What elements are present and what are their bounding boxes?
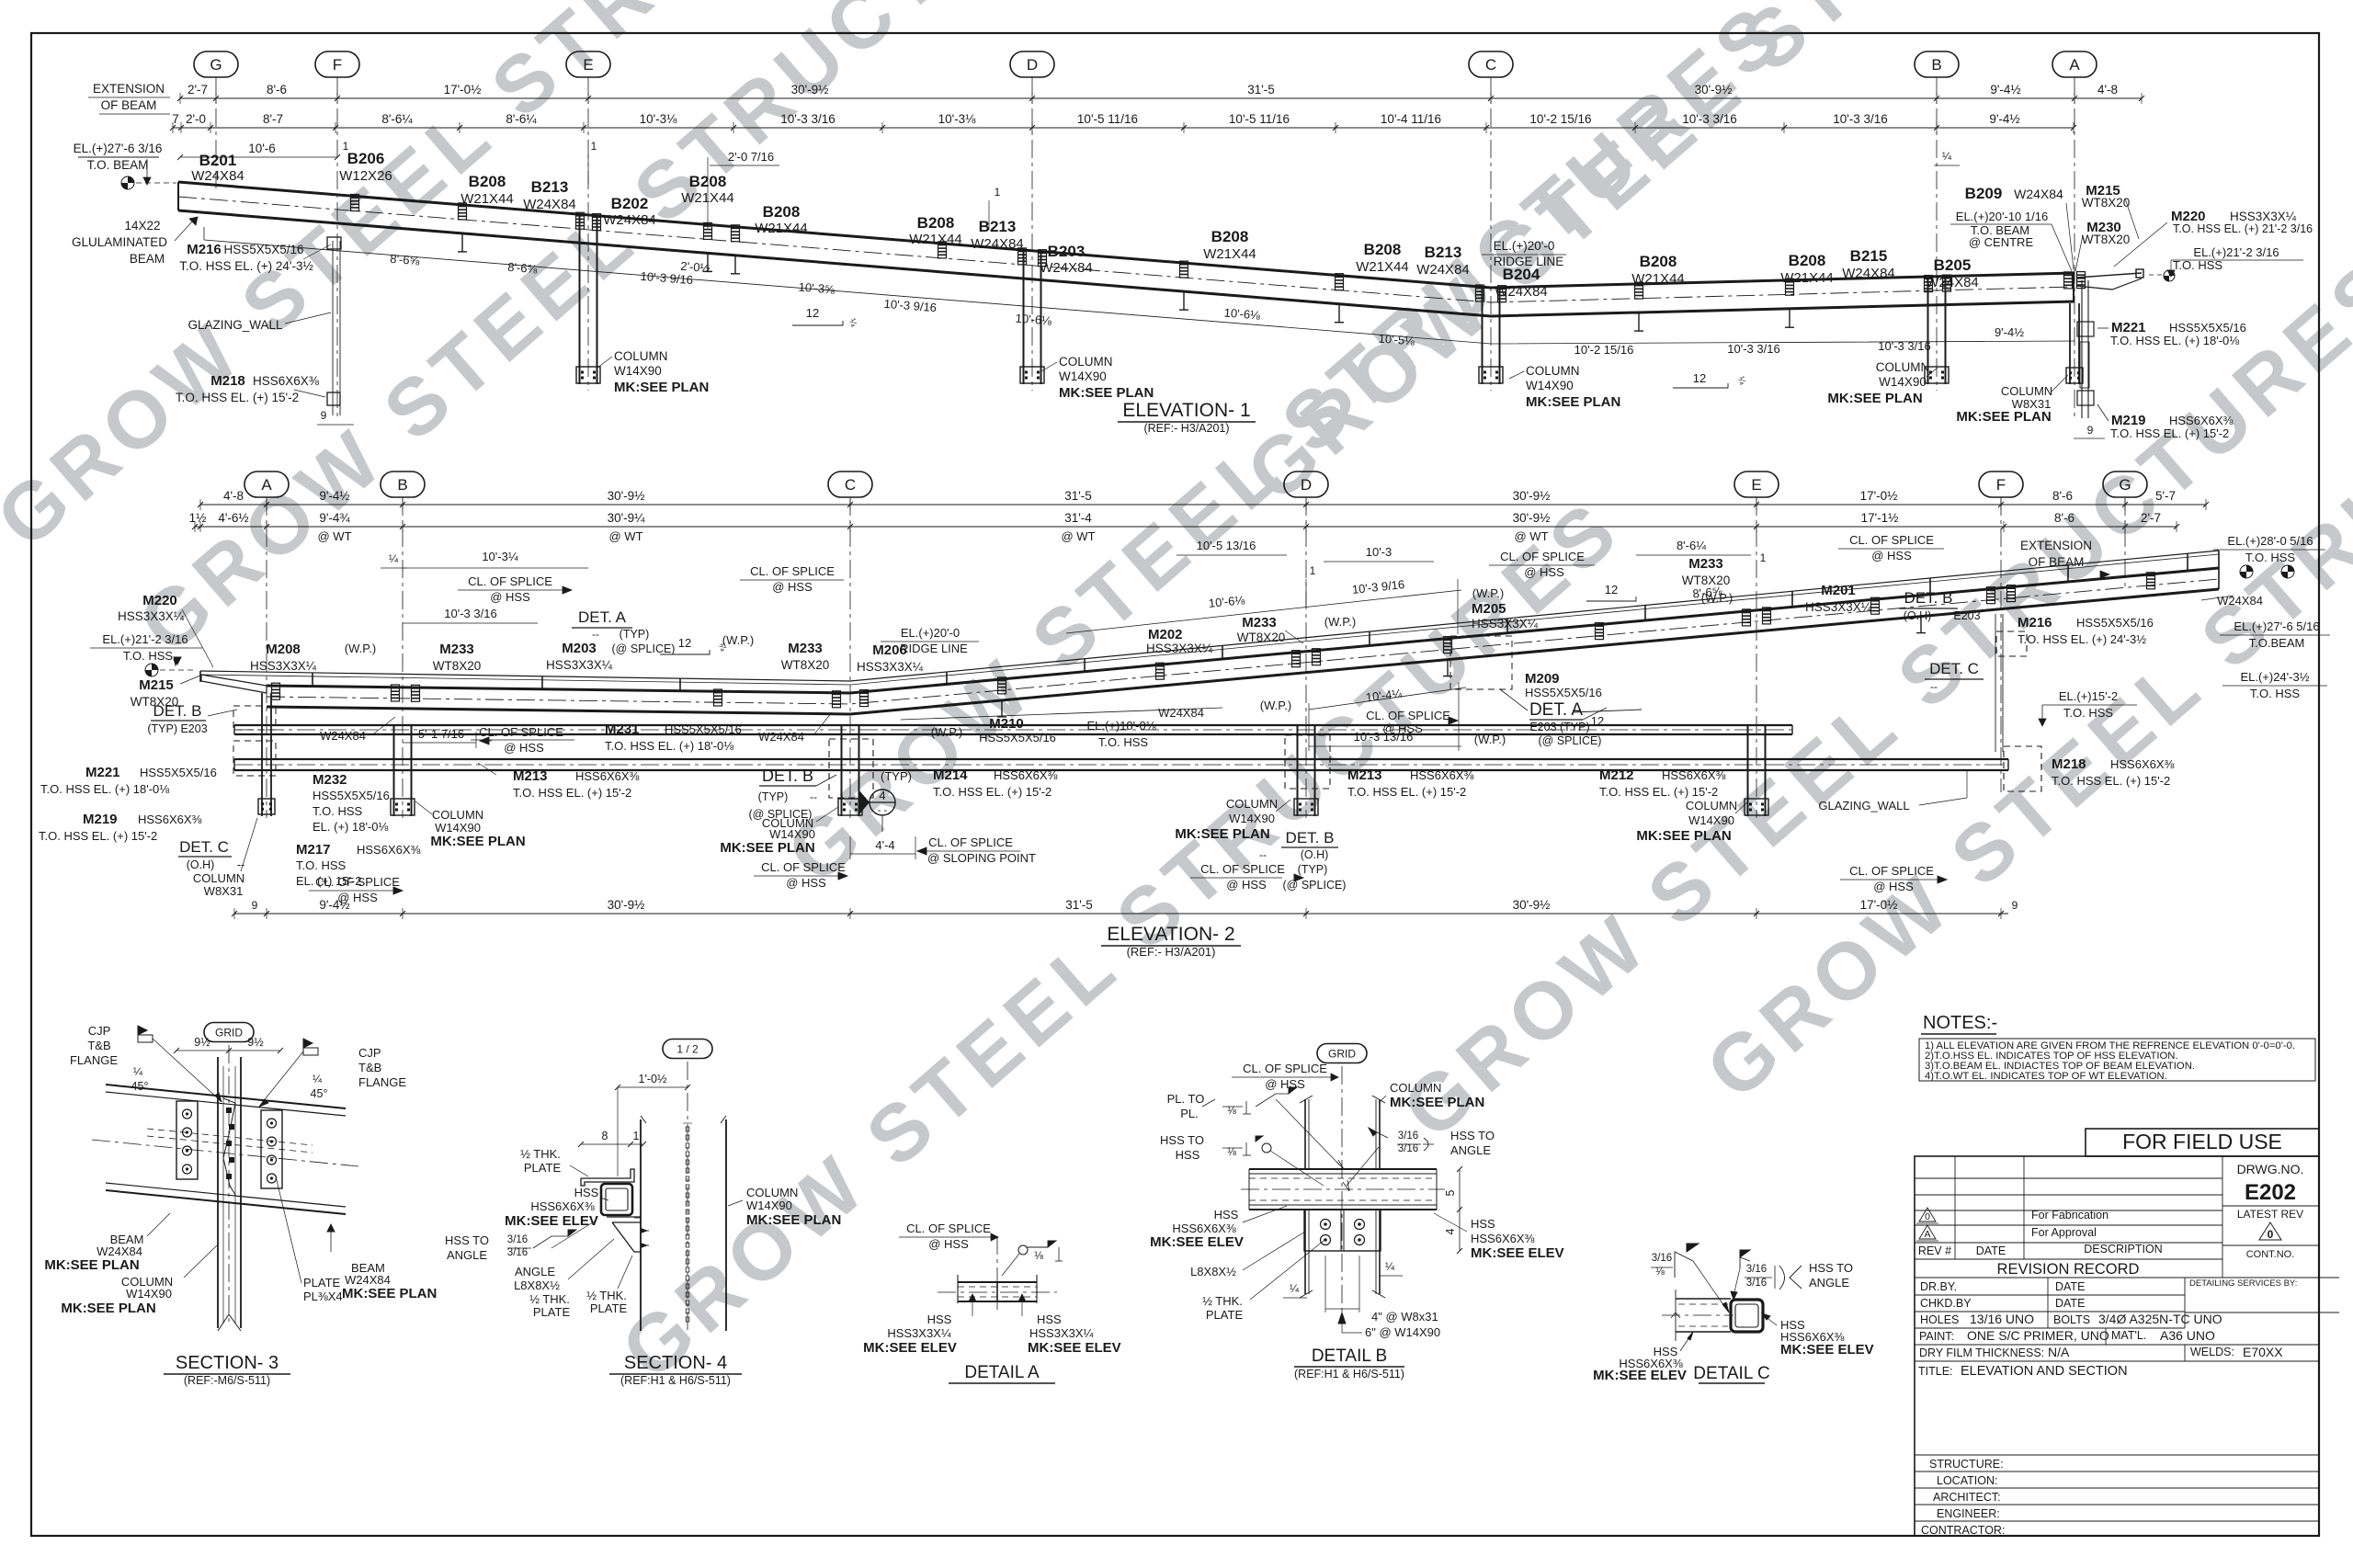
svg-text:CL. OF SPLICE: CL. OF SPLICE	[468, 574, 552, 588]
svg-text:5'-7: 5'-7	[2155, 489, 2176, 503]
svg-text:@ HSS: @ HSS	[1873, 880, 1914, 893]
svg-text:HSS: HSS	[574, 1186, 599, 1199]
svg-text:W24X84: W24X84	[603, 212, 656, 228]
svg-text:31'-5: 31'-5	[1247, 83, 1275, 97]
svg-text:30'-9½: 30'-9½	[608, 898, 645, 912]
svg-text:10'-5 11/16: 10'-5 11/16	[1077, 112, 1138, 126]
svg-text:4)T.O.WT EL. INDICATES TOP OF: 4)T.O.WT EL. INDICATES TOP OF WT ELEVATI…	[1925, 1071, 2167, 1082]
svg-text:T.O. HSS: T.O. HSS	[2245, 551, 2296, 564]
svg-text:M213: M213	[513, 768, 548, 784]
svg-text:HSS TO: HSS TO	[1809, 1261, 1853, 1275]
svg-text:30'-9½: 30'-9½	[608, 489, 645, 503]
svg-text:W24X84: W24X84	[1495, 284, 1548, 300]
svg-text:C: C	[845, 476, 856, 494]
svg-text:M231: M231	[605, 722, 640, 737]
svg-text:(@ SPLICE): (@ SPLICE)	[1539, 734, 1602, 747]
svg-text:DATE: DATE	[1976, 1244, 2006, 1257]
svg-text:T.O. HSS EL. (+) 15'-2: T.O. HSS EL. (+) 15'-2	[39, 829, 157, 843]
svg-text:W14X90: W14X90	[746, 1199, 792, 1212]
svg-text:PLATE: PLATE	[533, 1305, 571, 1319]
svg-text:10'-3 3/16: 10'-3 3/16	[444, 607, 496, 620]
svg-text:8'-6⅝: 8'-6⅝	[507, 260, 538, 276]
svg-text:B208: B208	[917, 214, 955, 232]
svg-text:@ HSS: @ HSS	[1871, 549, 1912, 562]
svg-text:4'-8: 4'-8	[2097, 83, 2118, 97]
svg-text:PAINT:: PAINT:	[1919, 1330, 1954, 1343]
svg-text:DETAIL A: DETAIL A	[964, 1363, 1040, 1382]
svg-text:M218: M218	[210, 373, 245, 389]
svg-text:ELEVATION- 1: ELEVATION- 1	[1122, 400, 1250, 421]
svg-text:4" @ W8x31: 4" @ W8x31	[1371, 1310, 1438, 1324]
svg-text:@ HSS: @ HSS	[928, 1237, 969, 1251]
svg-text:10'-3 3/16: 10'-3 3/16	[1878, 339, 1930, 353]
svg-text:@ HSS: @ HSS	[1382, 722, 1423, 735]
svg-text:COLUMN: COLUMN	[1876, 360, 1930, 374]
svg-text:G: G	[2119, 476, 2131, 494]
svg-text:10'-5 13/16: 10'-5 13/16	[1197, 539, 1256, 552]
svg-text:10'-3 3/16: 10'-3 3/16	[780, 112, 835, 126]
svg-text:½ THK.: ½ THK.	[586, 1289, 627, 1302]
svg-text:⅛: ⅛	[1655, 1267, 1665, 1278]
svg-text:½ THK.: ½ THK.	[520, 1147, 561, 1161]
svg-text:12: 12	[1591, 714, 1604, 728]
svg-text:HSS6X6X⅜: HSS6X6X⅜	[138, 812, 202, 826]
svg-text:HSS6X6X⅜: HSS6X6X⅜	[575, 769, 640, 783]
svg-text:4'-8: 4'-8	[223, 489, 244, 503]
svg-text:17'-0½: 17'-0½	[1860, 898, 1898, 912]
svg-text:B: B	[1931, 56, 1941, 74]
svg-text:(W.P.): (W.P.)	[722, 633, 754, 647]
svg-text:¼: ¼	[389, 552, 399, 565]
svg-text:13/16 UNO: 13/16 UNO	[1970, 1312, 2034, 1326]
svg-text:17'-1½: 17'-1½	[1861, 511, 1899, 525]
svg-text:T.O. HSS EL. (+) 24'-3½: T.O. HSS EL. (+) 24'-3½	[2018, 632, 2146, 646]
svg-text:MAT'L.: MAT'L.	[2111, 1329, 2146, 1342]
svg-text:9: 9	[2087, 424, 2094, 437]
svg-text:M213: M213	[1347, 767, 1382, 783]
svg-text:DR.BY.: DR.BY.	[1920, 1280, 1957, 1293]
svg-text:HSS TO: HSS TO	[445, 1233, 489, 1247]
svg-text:HSS6X6X⅜: HSS6X6X⅜	[1172, 1221, 1236, 1235]
svg-text:CL. OF SPLICE: CL. OF SPLICE	[315, 875, 400, 889]
svg-text:(W.P.): (W.P.)	[1472, 586, 1504, 600]
svg-text:MK:SEE ELEV: MK:SEE ELEV	[505, 1213, 598, 1229]
svg-text:2'-0: 2'-0	[186, 112, 206, 126]
svg-text:W24X84: W24X84	[2217, 594, 2263, 608]
svg-text:DET. B: DET. B	[153, 702, 202, 720]
svg-text:E203: E203	[1953, 609, 1980, 622]
svg-text:9'-4¾: 9'-4¾	[319, 511, 350, 525]
svg-text:REVISION RECORD: REVISION RECORD	[1997, 1261, 2140, 1278]
svg-text:MK:SEE PLAN: MK:SEE PLAN	[1175, 826, 1269, 842]
svg-text:HSS: HSS	[1214, 1208, 1239, 1221]
svg-text:(O.H): (O.H)	[187, 858, 215, 871]
svg-text:M214: M214	[933, 767, 968, 783]
svg-text:ONE S/C PRIMER, UNO: ONE S/C PRIMER, UNO	[1967, 1328, 2109, 1343]
svg-text:30'-9½: 30'-9½	[1513, 898, 1551, 912]
svg-text:W21X44: W21X44	[460, 191, 514, 207]
svg-text:4: 4	[879, 789, 885, 802]
svg-text:OF BEAM: OF BEAM	[101, 98, 157, 112]
svg-text:B208: B208	[1640, 253, 1677, 270]
svg-text:T&B: T&B	[87, 1039, 110, 1052]
svg-text:ELEVATION AND SECTION: ELEVATION AND SECTION	[1961, 1364, 2128, 1379]
svg-text:CL. OF SPLICE: CL. OF SPLICE	[1243, 1062, 1327, 1075]
svg-text:BOLTS: BOLTS	[2053, 1313, 2090, 1326]
svg-text:0: 0	[1925, 1211, 1930, 1222]
svg-text:DET. A: DET. A	[1529, 700, 1583, 720]
svg-text:31'-5: 31'-5	[1065, 898, 1093, 912]
svg-text:12: 12	[1605, 583, 1618, 597]
svg-text:--: --	[1930, 680, 1938, 693]
svg-text:⅛: ⅛	[1034, 1251, 1043, 1262]
svg-text:30'-9½: 30'-9½	[791, 83, 829, 97]
svg-text:HSS: HSS	[927, 1312, 952, 1326]
svg-text:HSS3X3X¼: HSS3X3X¼	[887, 1326, 951, 1340]
svg-text:B208: B208	[1789, 252, 1826, 269]
svg-text:ENGINEER:: ENGINEER:	[1937, 1507, 2000, 1520]
svg-text:(@ SPLICE): (@ SPLICE)	[1283, 879, 1347, 892]
svg-text:OF BEAM: OF BEAM	[2029, 555, 2085, 569]
svg-text:ANGLE: ANGLE	[1450, 1143, 1491, 1157]
svg-text:(O.H): (O.H)	[1904, 609, 1932, 622]
svg-text:@ HSS: @ HSS	[1524, 565, 1564, 579]
svg-text:(W.P.): (W.P.)	[1474, 733, 1506, 746]
svg-text:9: 9	[252, 899, 258, 912]
svg-text:MK:SEE PLAN: MK:SEE PLAN	[614, 380, 709, 395]
svg-text:2'-7: 2'-7	[2141, 511, 2161, 525]
svg-text:DESCRIPTION: DESCRIPTION	[2084, 1243, 2162, 1256]
svg-text:COLUMN: COLUMN	[193, 871, 244, 885]
svg-text:6" @ W14X90: 6" @ W14X90	[1365, 1325, 1440, 1339]
svg-text:HSS6X6X⅜: HSS6X6X⅜	[2169, 414, 2234, 427]
svg-text:10'-3⅛: 10'-3⅛	[938, 112, 977, 126]
svg-text:HSS3X3X¼: HSS3X3X¼	[118, 609, 185, 623]
svg-text:4'-4: 4'-4	[875, 838, 894, 852]
svg-text:SECTION- 3: SECTION- 3	[176, 1353, 278, 1373]
svg-text:9½: 9½	[247, 1036, 264, 1049]
svg-text:B203: B203	[1048, 243, 1086, 260]
svg-text:MK:SEE PLAN: MK:SEE PLAN	[1956, 409, 2051, 425]
svg-text:EL.(+)27'-6 3/16: EL.(+)27'-6 3/16	[74, 142, 163, 155]
svg-text:HSS5X5X5/16: HSS5X5X5/16	[2169, 321, 2246, 335]
svg-text:DET. B: DET. B	[1904, 589, 1953, 607]
svg-text:WT8X20: WT8X20	[781, 658, 830, 672]
svg-text:DATE: DATE	[2055, 1280, 2085, 1293]
svg-text:10'-3 3/16: 10'-3 3/16	[1727, 342, 1779, 356]
svg-text:W14X90: W14X90	[1688, 813, 1734, 827]
svg-text:HSS5X5X5/16: HSS5X5X5/16	[1525, 686, 1602, 699]
svg-text:W14X90: W14X90	[435, 821, 481, 835]
svg-text:T.O. HSS EL. (+) 15'-2: T.O. HSS EL. (+) 15'-2	[1347, 785, 1466, 799]
svg-text:T.O. HSS EL. (+) 18'-0⅛: T.O. HSS EL. (+) 18'-0⅛	[40, 782, 169, 796]
svg-text:M215: M215	[139, 677, 174, 693]
svg-text:30'-9½: 30'-9½	[1513, 511, 1551, 525]
svg-text:M216: M216	[2018, 615, 2052, 631]
svg-text:B213: B213	[531, 178, 569, 196]
svg-text:(TYP): (TYP)	[881, 769, 912, 783]
svg-text:12: 12	[806, 306, 819, 320]
svg-text:EL.(+)21'-2 3/16: EL.(+)21'-2 3/16	[2193, 245, 2279, 259]
svg-text:10'-3: 10'-3	[1366, 545, 1392, 559]
svg-text:30'-9½: 30'-9½	[1695, 83, 1733, 97]
svg-text:COLUMN: COLUMN	[614, 349, 668, 363]
svg-text:L8X8X½: L8X8X½	[1190, 1265, 1236, 1278]
svg-text:¼: ¼	[1385, 1260, 1395, 1273]
svg-text:CL. OF SPLICE: CL. OF SPLICE	[906, 1221, 991, 1235]
svg-text:ANGLE: ANGLE	[515, 1265, 555, 1278]
svg-text:CHKD.BY: CHKD.BY	[1920, 1297, 1972, 1310]
svg-text:--: --	[810, 790, 817, 803]
svg-text:WT8X20: WT8X20	[2082, 196, 2131, 210]
svg-text:F: F	[333, 56, 342, 74]
svg-text:B208: B208	[689, 173, 727, 190]
svg-text:D: D	[1301, 476, 1312, 494]
svg-text:T.O. HSS EL. (+) 15'-2: T.O. HSS EL. (+) 15'-2	[513, 786, 631, 800]
svg-text:@ WT: @ WT	[608, 529, 642, 543]
svg-text:B205: B205	[1934, 256, 1972, 274]
svg-text:DRY FILM THICKNESS:: DRY FILM THICKNESS:	[1919, 1346, 2044, 1359]
svg-text:EXTENSION: EXTENSION	[2020, 539, 2092, 552]
svg-text:@ WT: @ WT	[1061, 529, 1095, 543]
svg-text:MK:SEE ELEV: MK:SEE ELEV	[1028, 1340, 1121, 1356]
svg-text:(REF:H1 & H6/S-511): (REF:H1 & H6/S-511)	[1294, 1368, 1404, 1381]
svg-text:@ SLOPING POINT: @ SLOPING POINT	[927, 851, 1036, 865]
svg-text:CL. OF SPLICE: CL. OF SPLICE	[761, 860, 846, 874]
svg-text:WT8X20: WT8X20	[1237, 631, 1286, 644]
svg-text:W14X90: W14X90	[769, 827, 815, 841]
svg-text:(O.H): (O.H)	[1301, 848, 1329, 861]
svg-text:HSS5X5X5/16: HSS5X5X5/16	[2076, 616, 2154, 630]
svg-text:E: E	[583, 56, 593, 74]
svg-text:MK:SEE PLAN: MK:SEE PLAN	[342, 1286, 437, 1301]
svg-text:(W.P.): (W.P.)	[931, 725, 962, 739]
svg-text:1: 1	[591, 140, 597, 153]
svg-text:HSS3X3X¼: HSS3X3X¼	[250, 659, 317, 673]
svg-text:4'-6½: 4'-6½	[218, 511, 248, 525]
svg-text:M216: M216	[187, 242, 222, 257]
svg-text:M202: M202	[1148, 627, 1183, 642]
svg-text:COLUMN: COLUMN	[1390, 1081, 1441, 1095]
svg-text:EL.(+)20'-0: EL.(+)20'-0	[1494, 239, 1555, 253]
svg-text:MK:SEE ELEV: MK:SEE ELEV	[863, 1340, 957, 1356]
svg-text:FLANGE: FLANGE	[358, 1075, 406, 1089]
svg-text:W24X84: W24X84	[97, 1244, 142, 1258]
svg-text:½ THK.: ½ THK.	[1202, 1294, 1243, 1308]
svg-text:G: G	[210, 56, 222, 74]
svg-text:ARCHITECT:: ARCHITECT:	[1933, 1491, 2001, 1504]
svg-text:B213: B213	[979, 218, 1017, 235]
svg-text:WELDS:: WELDS:	[2190, 1346, 2234, 1358]
svg-text:31'-5: 31'-5	[1064, 489, 1092, 503]
svg-text:M221: M221	[85, 765, 120, 780]
svg-text:W24X84: W24X84	[1158, 706, 1204, 720]
svg-text:ELEVATION- 2: ELEVATION- 2	[1107, 924, 1234, 945]
svg-text:W14X90: W14X90	[614, 364, 662, 378]
svg-text:@ HSS: @ HSS	[1226, 878, 1267, 892]
svg-text:E203 (TYP): E203 (TYP)	[1529, 721, 1589, 733]
svg-text:W14X90: W14X90	[1879, 375, 1927, 389]
svg-text:1'-0½: 1'-0½	[639, 1073, 667, 1085]
svg-text:¼: ¼	[313, 1073, 323, 1085]
svg-text:DET. A: DET. A	[578, 608, 627, 626]
svg-text:W21X44: W21X44	[1203, 246, 1256, 262]
svg-text:L8X8X½: L8X8X½	[514, 1278, 560, 1292]
svg-text:MK:SEE ELEV: MK:SEE ELEV	[1780, 1342, 1874, 1358]
svg-text:(TYP): (TYP)	[1298, 863, 1328, 876]
svg-text:W24X84: W24X84	[1416, 262, 1470, 278]
svg-text:HSS6X6X⅜: HSS6X6X⅜	[2110, 757, 2175, 771]
svg-text:W24X84: W24X84	[345, 1273, 391, 1287]
svg-text:DET. C: DET. C	[1929, 660, 1979, 677]
svg-text:T.O. HSS: T.O. HSS	[2173, 258, 2223, 272]
svg-text:EL.(+)20'-0: EL.(+)20'-0	[901, 626, 960, 640]
svg-text:@ HSS: @ HSS	[786, 876, 826, 890]
svg-text:DET. B: DET. B	[762, 767, 813, 785]
svg-text:@ HSS: @ HSS	[772, 580, 813, 594]
svg-text:8'-6: 8'-6	[267, 83, 287, 97]
svg-text:CJP: CJP	[88, 1024, 111, 1038]
svg-text:HSS3X3X¼: HSS3X3X¼	[1146, 642, 1213, 655]
svg-text:E70XX: E70XX	[2243, 1345, 2283, 1359]
svg-text:CONTRACTOR:: CONTRACTOR:	[1921, 1524, 2005, 1537]
svg-text:14X22: 14X22	[124, 219, 160, 233]
svg-text:W21X44: W21X44	[755, 221, 808, 236]
svg-text:8'-6¼: 8'-6¼	[1677, 539, 1706, 552]
svg-text:CL. OF SPLICE: CL. OF SPLICE	[479, 725, 563, 739]
svg-text:B215: B215	[1850, 247, 1888, 265]
svg-text:HSS: HSS	[1176, 1148, 1200, 1162]
svg-text:W21X44: W21X44	[1631, 271, 1685, 287]
svg-text:--: --	[592, 628, 599, 641]
svg-text:N/A: N/A	[2048, 1345, 2070, 1359]
svg-text:RIDGE LINE: RIDGE LINE	[1494, 255, 1564, 268]
svg-text:EL. (+) 18'-0⅛: EL. (+) 18'-0⅛	[313, 820, 388, 834]
svg-text:MK:SEE PLAN: MK:SEE PLAN	[1390, 1095, 1484, 1110]
svg-text:EL.(+)18'-0⅛: EL.(+)18'-0⅛	[1086, 719, 1155, 733]
svg-text:T.O. HSS: T.O. HSS	[1098, 735, 1149, 749]
svg-text:3/4Ø A325N-TC UNO: 3/4Ø A325N-TC UNO	[2098, 1312, 2222, 1326]
svg-text:M217: M217	[296, 842, 331, 858]
svg-text:PL.: PL.	[1180, 1107, 1199, 1120]
svg-text:5: 5	[1444, 1189, 1457, 1196]
svg-text:HSS3X3X¼: HSS3X3X¼	[857, 660, 924, 674]
svg-text:HSS TO: HSS TO	[1160, 1133, 1204, 1147]
svg-text:9'-4½: 9'-4½	[319, 489, 349, 503]
svg-text:(REF:H1 & H6/S-511): (REF:H1 & H6/S-511)	[620, 1374, 731, 1387]
svg-text:5'-1 7/16: 5'-1 7/16	[418, 727, 464, 741]
svg-text:10'-2 15/16: 10'-2 15/16	[1574, 343, 1634, 357]
svg-text:HSS3X3X¼: HSS3X3X¼	[546, 658, 613, 672]
svg-text:W24X84: W24X84	[2014, 187, 2063, 201]
svg-text:B208: B208	[1364, 241, 1402, 258]
svg-text:10'-2 15/16: 10'-2 15/16	[1529, 112, 1591, 126]
svg-text:B208: B208	[763, 203, 801, 221]
svg-text:SECTION- 4: SECTION- 4	[624, 1353, 727, 1373]
svg-text:(W.P.): (W.P.)	[1324, 615, 1356, 629]
svg-text:T.O.BEAM: T.O.BEAM	[2249, 636, 2305, 650]
svg-text:3/16: 3/16	[1746, 1278, 1767, 1289]
svg-text:PLATE: PLATE	[524, 1161, 562, 1175]
svg-text:(@ SPLICE): (@ SPLICE)	[749, 808, 813, 821]
svg-text:EL.(+)28'-0 5/16: EL.(+)28'-0 5/16	[2227, 534, 2313, 548]
svg-text:M233: M233	[788, 641, 823, 656]
svg-text:W14X90: W14X90	[1526, 379, 1574, 392]
svg-text:PL⅜X4: PL⅜X4	[303, 1290, 343, 1303]
svg-text:B202: B202	[611, 195, 649, 212]
svg-text:HSS: HSS	[1037, 1312, 1062, 1326]
svg-text:COLUMN: COLUMN	[1059, 355, 1113, 369]
svg-text:10'-6: 10'-6	[248, 142, 276, 155]
svg-text:(REF:- H3/A201): (REF:- H3/A201)	[1143, 422, 1229, 435]
svg-text:T.O. HSS: T.O. HSS	[2250, 687, 2301, 700]
svg-text:PLATE: PLATE	[1206, 1308, 1244, 1322]
svg-text:B: B	[397, 476, 407, 494]
svg-text:(W.P.): (W.P.)	[345, 642, 376, 655]
svg-text:MK:SEE PLAN: MK:SEE PLAN	[61, 1301, 155, 1316]
svg-text:CL. OF SPLICE: CL. OF SPLICE	[750, 564, 835, 578]
svg-text:FLANGE: FLANGE	[70, 1053, 118, 1067]
svg-text:COLUMN: COLUMN	[746, 1186, 798, 1199]
svg-text:M208: M208	[266, 642, 301, 657]
svg-text:For Approval: For Approval	[2031, 1226, 2097, 1239]
svg-text:E: E	[1751, 476, 1761, 494]
svg-text:ANGLE: ANGLE	[1809, 1276, 1849, 1290]
svg-text:C: C	[1485, 56, 1496, 74]
svg-text:¼: ¼	[1290, 1282, 1300, 1295]
svg-text:M233: M233	[439, 642, 474, 657]
svg-text:W24X84: W24X84	[1926, 275, 1979, 290]
svg-text:T.O. HSS EL. (+) 18'-0⅛: T.O. HSS EL. (+) 18'-0⅛	[2110, 334, 2239, 347]
svg-text:T.O. HSS: T.O. HSS	[2063, 706, 2114, 720]
svg-text:M205: M205	[1472, 601, 1506, 617]
svg-text:MK:SEE ELEV: MK:SEE ELEV	[1471, 1245, 1564, 1261]
svg-text:M219: M219	[83, 812, 118, 827]
svg-text:HSS: HSS	[1471, 1217, 1495, 1231]
svg-text:LOCATION:: LOCATION:	[1937, 1474, 1997, 1487]
svg-text:1: 1	[1760, 551, 1767, 564]
svg-text:2'-0 7/16: 2'-0 7/16	[728, 150, 774, 164]
svg-text:CL. OF SPLICE: CL. OF SPLICE	[1500, 550, 1585, 563]
svg-text:⅛: ⅛	[1227, 1147, 1236, 1158]
svg-text:@ WT: @ WT	[317, 529, 351, 543]
svg-text:GLULAMINATED: GLULAMINATED	[72, 235, 167, 249]
svg-text:W24X84: W24X84	[1040, 260, 1093, 276]
svg-text:EL.(+)20'-10 1/16: EL.(+)20'-10 1/16	[1956, 210, 2048, 223]
svg-text:DETAIL B: DETAIL B	[1312, 1346, 1387, 1366]
svg-text:M201: M201	[1821, 583, 1856, 598]
svg-text:W24X84: W24X84	[758, 730, 804, 744]
svg-text:DET. C: DET. C	[179, 838, 229, 856]
svg-text:For Fabrication: For Fabrication	[2031, 1209, 2109, 1221]
svg-text:DATE: DATE	[2055, 1297, 2085, 1310]
svg-text:CL. OF SPLICE: CL. OF SPLICE	[1200, 862, 1285, 876]
svg-text:8'-6¼: 8'-6¼	[381, 112, 413, 126]
svg-text:B201: B201	[199, 152, 237, 169]
svg-text:17'-0½: 17'-0½	[1860, 489, 1898, 503]
svg-text:MK:SEE PLAN: MK:SEE PLAN	[430, 834, 525, 849]
svg-text:9'-4½: 9'-4½	[1990, 83, 2020, 97]
svg-text:HSS5X5X5/16: HSS5X5X5/16	[979, 731, 1056, 744]
svg-text:3/16: 3/16	[1652, 1253, 1672, 1264]
svg-text:10'-5⅛: 10'-5⅛	[1378, 331, 1415, 347]
svg-text:8'-7: 8'-7	[263, 112, 283, 126]
svg-text:W21X44: W21X44	[1356, 259, 1409, 275]
svg-text:PLATE: PLATE	[590, 1301, 628, 1315]
svg-text:9: 9	[321, 409, 327, 422]
svg-text:HSS3X3X¼: HSS3X3X¼	[1472, 617, 1539, 631]
svg-text:M233: M233	[1242, 615, 1277, 631]
